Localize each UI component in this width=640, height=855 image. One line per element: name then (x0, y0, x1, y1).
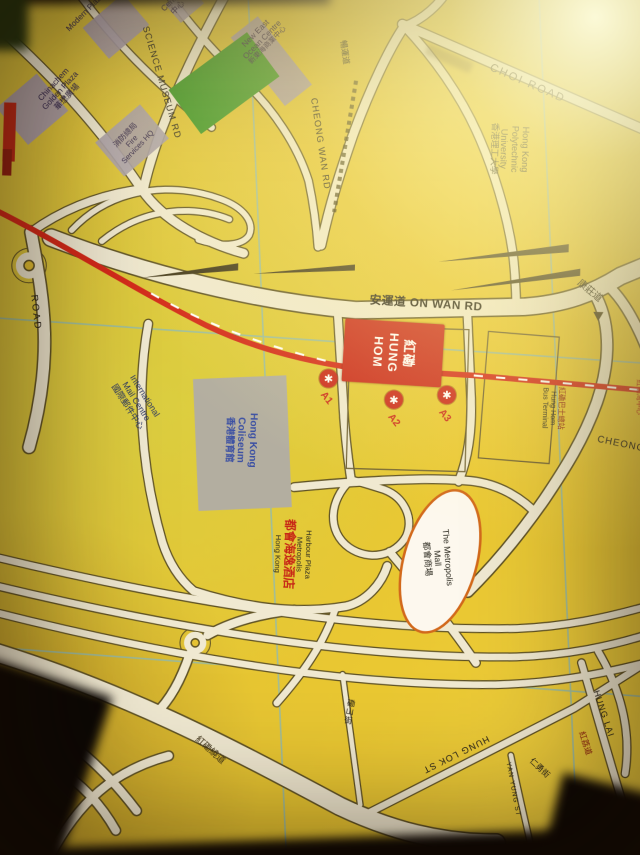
label-line: Coliseum (234, 413, 247, 468)
map-photo: Modern Plaza Centre 中心 Chinachem Golden … (0, 0, 640, 855)
exit-symbol-icon: ✱ (324, 372, 334, 385)
label-line: Hung Hom (547, 387, 556, 430)
label-line: Bus Terminal (539, 386, 548, 429)
label-line: 香港體育館 (224, 412, 236, 467)
hung-hom-station-box: 紅磡 HUNG HOM (342, 318, 445, 387)
photo-edge-top-left (0, 0, 28, 50)
place-label-mail-centre: International Mail Centre 國際郵件中心 (79, 359, 193, 443)
place-label-coliseum: Hong Kong Coliseum 香港體育館 (193, 373, 290, 508)
place-label-fire-services: 消防總局 Fire Services HQ (91, 114, 174, 169)
label-line: 磡山街 (344, 698, 356, 725)
place-label-metropolis-mall: The Metropolis Mall 都會商場 (401, 507, 473, 610)
label-line: Hong Kong (246, 413, 259, 468)
place-label-polyu: Hong Kong Polytechnic University 香港理工大學 (455, 89, 564, 210)
place-label-chinachem: Chinachem Golden Plaza 華懋廣場 (19, 59, 102, 122)
exit-symbol-icon: ✱ (389, 393, 399, 406)
photo-edge-top (0, 0, 330, 4)
exit-symbol-icon: ✱ (442, 388, 452, 401)
label-line: 都會海逸酒店 (280, 519, 295, 589)
place-label-new-east-ocean: New East Ocean Centre 新東海商業中心 (215, 6, 308, 73)
place-label-centre: Centre 中心 (143, 0, 205, 28)
place-label-bus-terminal: 紅磡巴士總站 Hung Hom Bus Terminal (516, 372, 589, 445)
label-line: Polytechnic (509, 123, 521, 175)
label-line: 紅磡灣中心 (635, 379, 640, 415)
label-zh: 安運道 (369, 294, 406, 308)
label-line: 香港理工大學 (488, 123, 499, 175)
place-label-hung-hom-bay: 紅磡灣中心 (634, 379, 640, 415)
label-line: 紅磡巴士總站 (556, 387, 565, 430)
label-line: Hong Kong (519, 123, 531, 175)
place-label-harbour-plaza: Harbour Plaza Metropolis 都會海逸酒店 Hong Kon… (247, 490, 338, 618)
